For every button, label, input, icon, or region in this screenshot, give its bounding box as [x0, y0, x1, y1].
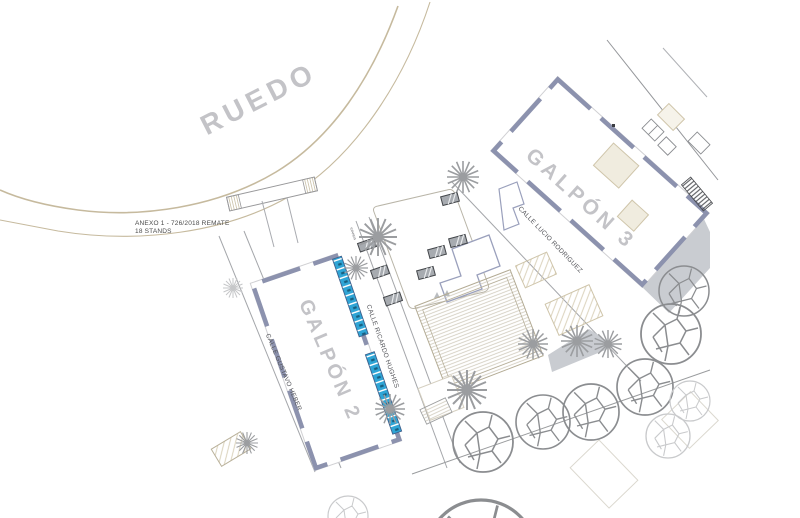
stand-strip-tiny-label: STANDS	[349, 227, 357, 241]
anexo-note: ANEXO 1 - 726/2018 REMATE 18 STANDS	[135, 220, 229, 236]
anexo-note-line1: ANEXO 1 - 726/2018 REMATE	[135, 220, 229, 228]
faint-pads	[570, 392, 718, 508]
warehouse-2: GALPÓN 2	[250, 252, 404, 470]
tribune-walkway	[262, 198, 298, 247]
site-plan-drawing: GALPÓN 3 GALPÓN 2	[0, 0, 800, 518]
anexo-note-line2: 18 STANDS	[135, 228, 229, 236]
site-plan-canvas: GALPÓN 3 GALPÓN 2	[0, 0, 800, 518]
arena-label: RUEDO	[195, 56, 321, 141]
